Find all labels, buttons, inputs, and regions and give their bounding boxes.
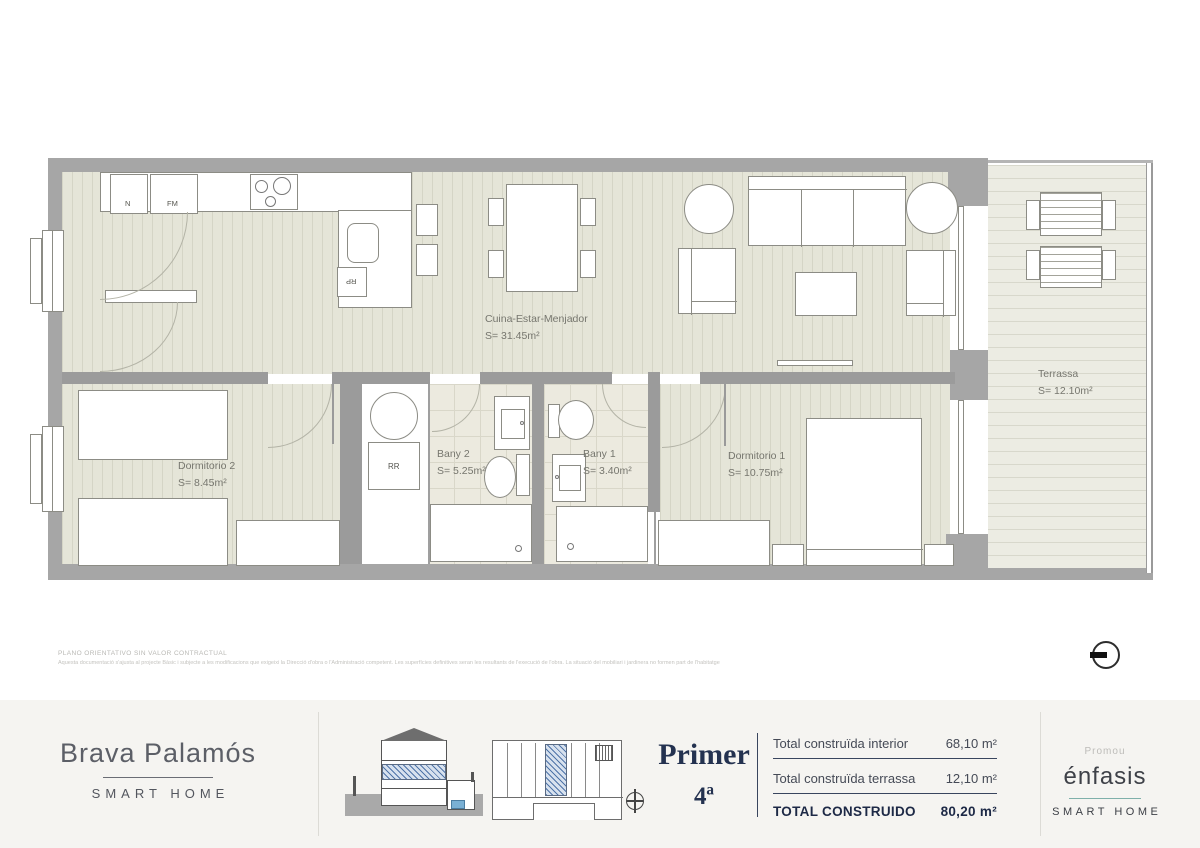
room-label-terrace: Terrassa S= 12.10m²: [1038, 366, 1093, 400]
room-name: Bany 1: [583, 446, 632, 463]
totals-separator: [773, 793, 997, 794]
keyplan-line: [585, 743, 586, 797]
bed-single: [78, 390, 228, 460]
brand-tagline: SMART HOME: [48, 786, 268, 801]
terrace-chair: [1026, 200, 1040, 230]
unit-block: Primer 4ª: [656, 740, 752, 820]
wall-bath-divider: [532, 384, 544, 564]
wall-bath1-bedroom1: [648, 384, 660, 512]
dining-table: [506, 184, 578, 292]
sink-drain: [520, 421, 524, 425]
sink-basin: [559, 465, 581, 491]
unit-door: 4ª: [656, 784, 752, 809]
window-living-left: [42, 230, 64, 312]
disclaimer-title: PLANO ORIENTATIVO SIN VALOR CONTRACTUAL: [58, 650, 227, 657]
bath2-shower: [430, 504, 532, 562]
shower-drain: [515, 545, 522, 552]
totals-label: Total construïda terrassa: [773, 771, 915, 786]
armchair-line: [943, 251, 944, 317]
totals-value: 12,10 m²: [946, 771, 997, 786]
kitchen-sink: [347, 223, 379, 263]
promoter-label: Promou: [1045, 746, 1165, 757]
room-area: S= 8.45m²: [178, 475, 235, 492]
armchair-line: [691, 301, 737, 302]
section-post: [471, 772, 474, 782]
bath1-toilet-bowl: [558, 400, 594, 440]
tag-rp-box: RP: [337, 267, 367, 297]
wall-segment: [480, 372, 612, 384]
pier-mid-right: [950, 350, 988, 400]
shelf: [777, 360, 853, 366]
room-area: S= 31.45m²: [485, 328, 588, 345]
sofa-line: [749, 189, 907, 190]
window-bedroom2-left: [42, 426, 64, 512]
terrace-table: [1040, 192, 1102, 236]
building-section-thumbnail: [345, 728, 483, 822]
totals-value: 68,10 m²: [946, 736, 997, 751]
bed-line: [807, 549, 923, 550]
armchair: [678, 248, 736, 314]
dresser: [658, 520, 770, 566]
promoter-block: Promou énfasis SMART HOME: [1045, 746, 1165, 818]
totals-total-label: TOTAL CONSTRUIDO: [773, 804, 916, 819]
nightstand: [772, 544, 804, 566]
bar-stool: [416, 204, 438, 236]
floorplan-drawing: N FM RP: [0, 0, 1200, 700]
window-sill-bedroom2: [30, 434, 42, 504]
totals-label: Total construïda interior: [773, 736, 908, 751]
keyplan-line: [507, 743, 508, 797]
section-highlight-floor: [382, 764, 446, 780]
room-area: S= 12.10m²: [1038, 383, 1093, 400]
bar-stool: [416, 244, 438, 276]
wall-top: [48, 158, 975, 172]
burner: [265, 196, 276, 207]
tag-fm: FM: [167, 199, 178, 208]
room-name: Dormitorio 2: [178, 458, 235, 475]
promoter-rule: [1069, 798, 1141, 799]
cooktop: [250, 174, 298, 210]
room-name: Terrassa: [1038, 366, 1093, 383]
keyplan-floor-line: [493, 797, 623, 798]
room-area: S= 3.40m²: [583, 463, 632, 480]
room-name: Dormitorio 1: [728, 448, 785, 465]
section-roof: [381, 728, 447, 741]
terrace-chair: [1102, 250, 1116, 280]
bed-single: [78, 498, 228, 566]
room-label-living: Cuina-Estar-Menjador S= 31.45m²: [485, 311, 588, 345]
totals-row: Total construïda terrassa 12,10 m²: [773, 771, 997, 786]
totals-total-row: TOTAL CONSTRUIDO 80,20 m²: [773, 804, 997, 819]
terrace-right-edge: [1146, 163, 1153, 573]
keyplan-stair-core: [595, 745, 613, 761]
glazing-bedroom1-terrace: [958, 400, 964, 534]
disclaimer-text: Aquesta documentació s'ajusta al project…: [58, 660, 1118, 666]
section-post: [353, 776, 356, 796]
kitchen-cabinet-fm: FM: [150, 174, 198, 214]
wall-bottom: [48, 564, 988, 580]
dining-chair: [488, 250, 504, 278]
round-side-table: [684, 184, 734, 234]
keyplan-porch: [533, 803, 595, 820]
wall-segment: [62, 372, 268, 384]
totals-row: Total construïda interior 68,10 m²: [773, 736, 997, 751]
promoter-tagline: SMART HOME: [1045, 806, 1165, 818]
brand-block: Brava Palamós SMART HOME: [48, 738, 268, 801]
armchair-line: [907, 303, 943, 304]
coffee-table: [795, 272, 857, 316]
kitchen-cabinet-n: N: [110, 174, 148, 214]
dining-chair: [580, 198, 596, 226]
room-name: Cuina-Estar-Menjador: [485, 311, 588, 328]
brand-name: Brava Palamós: [48, 738, 268, 769]
bed-double: [806, 418, 922, 566]
armchair-line: [691, 249, 692, 315]
terrace-chair: [1026, 250, 1040, 280]
room-label-bath2: Bany 2 S= 5.25m²: [437, 446, 486, 480]
key-plan-thumbnail: [492, 740, 622, 820]
room-label-bath1: Bany 1 S= 3.40m²: [583, 446, 632, 480]
tag-rr-box: RR: [368, 442, 420, 490]
wall-segment: [700, 372, 955, 384]
shower-drain: [567, 543, 574, 550]
brand-rule: [103, 777, 213, 778]
bath2-sink: [494, 396, 530, 450]
terrace-bottom-wall: [988, 568, 1153, 580]
bath1-sink: [552, 454, 586, 502]
room-name: Bany 2: [437, 446, 486, 463]
dining-chair: [580, 250, 596, 278]
keyplan-line: [521, 743, 522, 797]
wall-segment: [332, 372, 430, 384]
tag-rp: RP: [346, 277, 356, 286]
terrace-table: [1040, 246, 1102, 288]
nightstand: [924, 544, 954, 566]
glazing-living-terrace: [958, 206, 964, 350]
terrace-top-edge: [975, 160, 1153, 163]
tag-n: N: [125, 199, 130, 208]
unit-floor: Primer: [656, 740, 752, 770]
promoter-name: énfasis: [1045, 763, 1165, 791]
terrace-chair: [1102, 200, 1116, 230]
room-area: S= 5.25m²: [437, 463, 486, 480]
sofa-line: [801, 189, 802, 247]
kitchen-island: RP: [338, 210, 412, 308]
footer-divider: [318, 712, 319, 836]
burner: [273, 177, 291, 195]
room-area: S= 10.75m²: [728, 465, 785, 482]
tag-rr: RR: [388, 462, 400, 471]
washing-machine: [370, 392, 418, 440]
totals-table: Total construïda interior 68,10 m² Total…: [773, 732, 997, 826]
section-pool: [451, 800, 465, 809]
unit-table-divider: [757, 733, 758, 817]
keyplan-highlight-unit: [545, 744, 567, 796]
totals-separator: [773, 758, 997, 759]
keyplan-line: [571, 743, 572, 797]
room-label-bedroom2: Dormitorio 2 S= 8.45m²: [178, 458, 235, 492]
window-bedroom2-mullion: [52, 426, 53, 512]
floorplan-sheet: N FM RP: [0, 0, 1200, 848]
section-floor-line: [382, 788, 446, 789]
door-leaf: [724, 384, 726, 446]
section-floor-line: [382, 760, 446, 761]
footer-divider: [1040, 712, 1041, 836]
footer-bar: Brava Palamós SMART HOME: [0, 700, 1200, 848]
burner: [255, 180, 268, 193]
compass-cross: [627, 800, 643, 802]
keyplan-line: [535, 743, 536, 797]
sofa-line: [853, 189, 854, 247]
door-leaf: [332, 384, 334, 444]
wall-thin-shower: [654, 512, 656, 564]
bath2-toilet-bowl: [484, 456, 516, 498]
window-sill-living: [30, 238, 42, 304]
bath2-toilet-tank: [516, 454, 530, 496]
sink-drain: [555, 475, 559, 479]
dining-chair: [488, 198, 504, 226]
round-side-table: [906, 182, 958, 234]
wall-left: [48, 158, 62, 580]
compass-icon: [626, 792, 644, 810]
room-label-bedroom1: Dormitorio 1 S= 10.75m²: [728, 448, 785, 482]
north-bar: [1090, 652, 1107, 658]
window-living-left-mullion: [52, 230, 53, 312]
bath1-shower: [556, 506, 648, 562]
wall-bedroom2-closet: [340, 384, 362, 564]
wall-segment: [648, 372, 660, 384]
desk: [236, 520, 340, 566]
sofa: [748, 176, 906, 246]
armchair: [906, 250, 956, 316]
totals-total-value: 80,20 m²: [941, 804, 997, 819]
